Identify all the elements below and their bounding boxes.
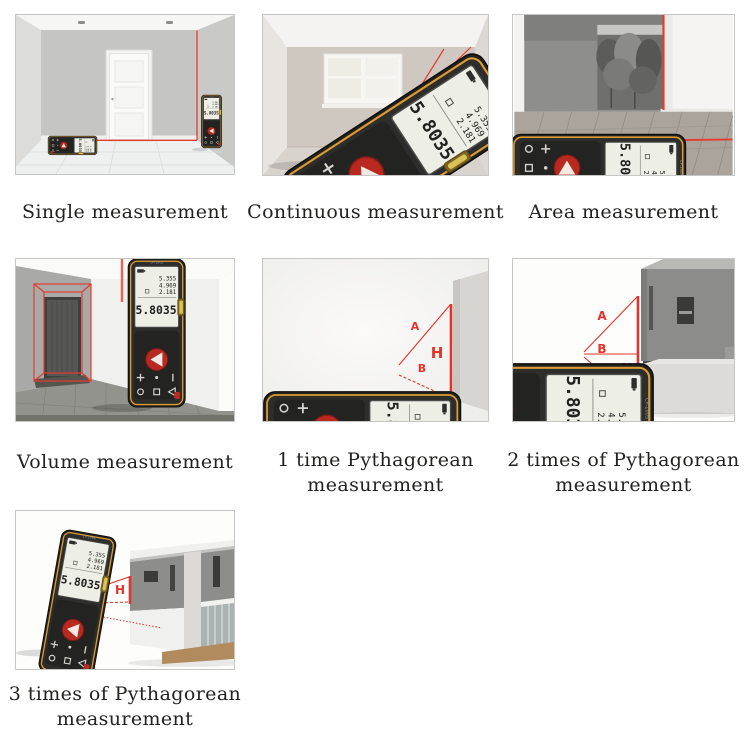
panel-continuous-measurement: Continuous measurement xyxy=(262,14,489,176)
device-left xyxy=(48,136,97,155)
label-a: A xyxy=(411,320,420,333)
upper-building xyxy=(641,259,734,361)
window xyxy=(213,556,220,587)
caption-area-measurement: Area measurement xyxy=(529,200,719,225)
device xyxy=(513,134,686,175)
left-frame xyxy=(514,15,524,112)
label-h: H xyxy=(115,583,125,597)
door-handle xyxy=(111,98,113,100)
caption-continuous-measurement: Continuous measurement xyxy=(247,200,504,225)
ceiling xyxy=(263,15,488,47)
pythagorean-3-illustration: A B C H xyxy=(15,510,235,670)
right-wall xyxy=(672,15,732,112)
window xyxy=(144,571,158,582)
caption-pythagorean-2: 2 times of Pythagorean measurement xyxy=(499,448,749,498)
caption-pythagorean-1: 1 time Pythagorean measurement xyxy=(251,448,501,498)
window-recess xyxy=(677,297,694,324)
single-measurement-illustration xyxy=(15,14,235,175)
panel-single-measurement: Single measurement xyxy=(15,14,235,175)
window xyxy=(170,565,175,591)
pythagorean-2-illustration: A B C H xyxy=(512,258,735,422)
pillar xyxy=(184,551,201,654)
door xyxy=(106,50,152,141)
ceiling xyxy=(16,15,234,30)
door-frame-right xyxy=(664,15,672,112)
continuous-measurement-illustration xyxy=(262,14,489,176)
caption-single-measurement: Single measurement xyxy=(22,200,228,225)
wall-edge-shade xyxy=(453,279,460,401)
wall-slot xyxy=(649,286,653,330)
pythagorean-1-illustration: A B H xyxy=(262,258,489,422)
device-standing xyxy=(128,259,185,407)
panel-pythagorean-1: A B H 1 time Pythagorean measurement xyxy=(262,258,489,422)
device-right xyxy=(201,95,221,148)
volume-measurement-illustration xyxy=(15,258,235,422)
panel-volume-measurement: Volume measurement xyxy=(15,258,235,422)
ceiling-light xyxy=(78,21,85,24)
caption-pythagorean-3: 3 times of Pythagorean measurement xyxy=(0,682,250,732)
device-shadow xyxy=(192,148,208,152)
ceiling-light xyxy=(166,21,173,24)
label-a: A xyxy=(597,309,607,323)
panel-area-measurement: Area measurement xyxy=(512,14,735,176)
window xyxy=(322,54,404,108)
device xyxy=(264,392,461,421)
label-b: B xyxy=(418,362,426,375)
caption-volume-measurement: Volume measurement xyxy=(17,450,233,475)
label-h: H xyxy=(431,344,444,362)
trees-view xyxy=(596,25,662,110)
label-b: B xyxy=(597,342,606,356)
right-wall xyxy=(219,273,234,421)
lower-building xyxy=(643,359,734,418)
panel-pythagorean-3: A B C H 3 times of Pythagorean measureme… xyxy=(15,510,235,670)
device xyxy=(513,364,653,421)
area-measurement-illustration xyxy=(512,14,735,176)
panel-pythagorean-2: A B C H 2 times of Pythagorean measureme… xyxy=(512,258,735,422)
